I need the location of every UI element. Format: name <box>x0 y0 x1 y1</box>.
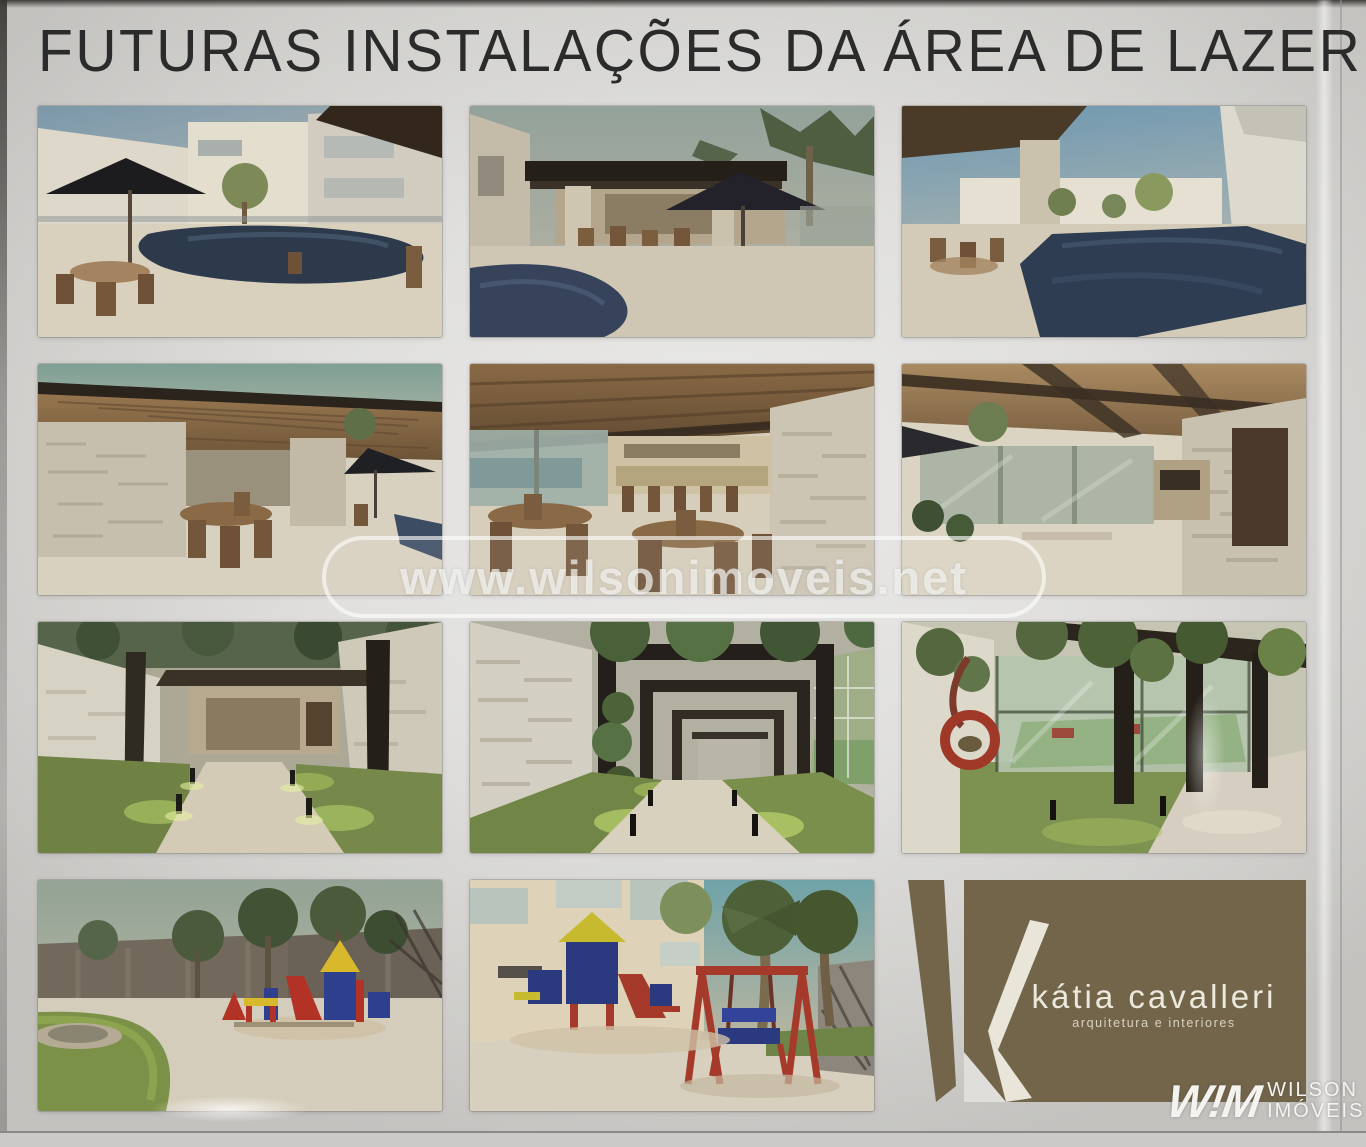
stone-pillar <box>290 438 346 526</box>
logo-mark-stem <box>908 880 956 1102</box>
pool-terrace-dusk-scene <box>38 106 442 337</box>
palm <box>1102 194 1126 218</box>
watermark-band: www.wilsonimoveis.net <box>322 536 1046 618</box>
board-right-reflection <box>1316 0 1332 1147</box>
wilson-wordmark: WILSON IMÓVEIS <box>1267 1080 1364 1122</box>
glass-fence <box>38 216 442 222</box>
shrub <box>912 500 944 532</box>
playground-palms-scene <box>38 880 442 1111</box>
render-pool-pavilion <box>470 106 874 337</box>
court-tire-swing-scene <box>902 622 1306 853</box>
wim-monogram: W!M <box>1165 1078 1263 1124</box>
back-wall <box>960 178 1222 226</box>
tree <box>660 882 712 934</box>
render-pool-terrace-dusk <box>38 106 442 337</box>
palm <box>1048 188 1076 216</box>
render-garden-walkway <box>38 622 442 853</box>
bbq-opening <box>1160 470 1200 490</box>
garden-walkway-scene <box>38 622 442 853</box>
lap-pool-scene <box>902 106 1306 337</box>
board-left-edge <box>0 0 7 1147</box>
dark-door <box>1232 428 1288 546</box>
render-playground-palms <box>38 880 442 1111</box>
pergola-walkway-scene <box>470 622 874 853</box>
wilson-imoveis-logo: W!M WILSON IMÓVEIS <box>1168 1078 1364 1124</box>
hood <box>624 444 740 458</box>
brand-tagline: arquitetura e interiores <box>1002 1016 1306 1030</box>
wilson-wordmark-line2: IMÓVEIS <box>1267 1101 1364 1122</box>
render-playground-swings <box>470 880 874 1111</box>
tree <box>968 402 1008 442</box>
board-bottom-strip <box>0 1133 1366 1147</box>
pool-pavilion-scene <box>470 106 874 337</box>
brand-name: kátia cavalleri <box>1002 978 1306 1016</box>
board-right-edge-line <box>1340 0 1342 1147</box>
page-title: FUTURAS INSTALAÇÕES DA ÁREA DE LAZER <box>38 17 1362 86</box>
wilson-wordmark-line1: WILSON <box>1267 1080 1364 1101</box>
pool-view <box>470 458 582 488</box>
bar-counter <box>616 466 768 486</box>
watermark-url: www.wilsonimoveis.net <box>400 550 968 605</box>
playground-swings-scene <box>470 880 874 1111</box>
glass-wall <box>920 446 1154 524</box>
poster-board: FUTURAS INSTALAÇÕES DA ÁREA DE LAZER <box>0 0 1366 1147</box>
tree <box>1135 173 1173 211</box>
board-top-edge <box>0 0 1366 8</box>
render-court-tire-swing <box>902 622 1306 853</box>
render-lap-pool <box>902 106 1306 337</box>
patio-chairs <box>930 238 1004 275</box>
plant <box>344 408 376 440</box>
render-pergola-walkway <box>470 622 874 853</box>
